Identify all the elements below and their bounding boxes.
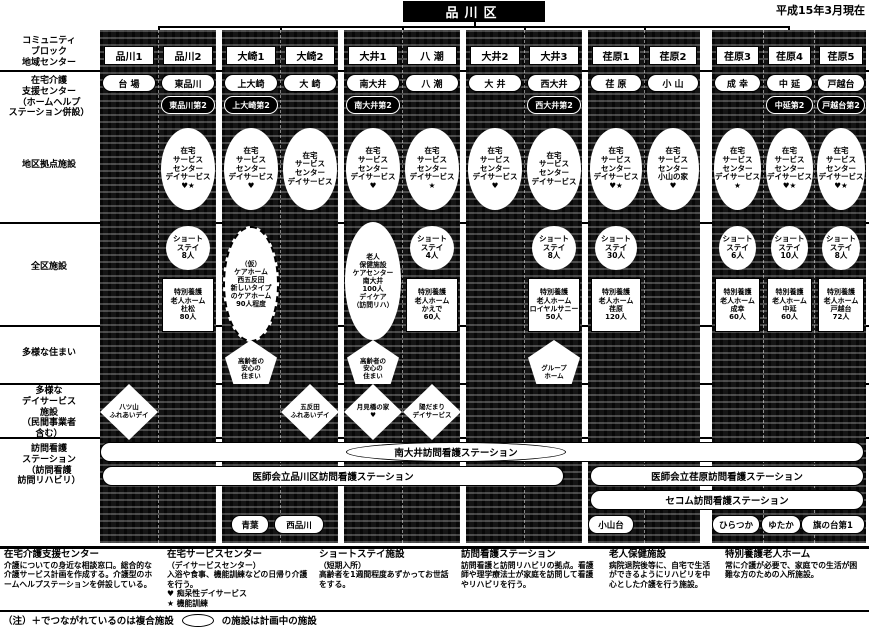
- grouphome-pentagon: グループ ホーム: [528, 340, 580, 384]
- shortstay-oval: ショート ステイ 6人: [719, 226, 756, 270]
- support-center-pill: 東品川: [161, 74, 215, 92]
- legend-body: 訪問看護と訪問リハビリの拠点。看護師や理学療法士が家庭を訪問して看護やリハビリを…: [461, 561, 600, 590]
- column-header: 大崎1: [226, 46, 276, 65]
- tree-horizontal-line: [158, 26, 790, 28]
- service-center-oval: 在宅 サービス センター デイサービス ♥★: [161, 128, 215, 210]
- station-oval-yutaka: ゆたか: [761, 515, 801, 534]
- column-header: 荏原2: [649, 46, 697, 65]
- support-center2-pill: 南大井第2: [346, 96, 400, 114]
- housing-pentagon: 高齢者の 安心の 住まい: [347, 340, 399, 384]
- minamioi-station-oval: 南大井訪問看護ステーション: [346, 442, 566, 462]
- service-center-oval: 在宅 サービス センター デイサービス ♥: [346, 128, 400, 210]
- support-center2-pill: 戸越台第2: [817, 96, 865, 114]
- service-center-oval: 在宅 サービス センター デイサービス ★: [405, 128, 459, 210]
- ward-title-box: 品川区: [403, 1, 545, 22]
- footnote: （注）＋でつながれているのは複合施設 の施設は計画中の施設: [0, 613, 869, 627]
- facility-map-diagram: 品川区 平成15年3月現在 コミュニティ ブロック 地域センター 在宅介護 支援…: [0, 0, 869, 627]
- column-header: 品川2: [163, 46, 213, 65]
- secom-station-pill: セコム訪問看護ステーション: [590, 490, 864, 510]
- nursing-home-box: 特別養護 老人ホーム 戸越台 72人: [818, 278, 864, 332]
- support-center2-pill: 西大井第2: [527, 96, 581, 114]
- legend-body: （短期入所） 高齢者を1週間程度あずかってお世話をする。: [319, 561, 452, 590]
- legend-title: 老人保健施設: [609, 550, 716, 561]
- rule-note-top: [0, 610, 869, 612]
- nursing-home-box: 特別養護 老人ホーム 成幸 60人: [715, 278, 760, 332]
- service-center-oval: 在宅 サービス センター デイサービス ♥: [224, 128, 278, 210]
- shortstay-oval: ショート ステイ 8人: [166, 226, 210, 270]
- column-header: 荏原3: [716, 46, 759, 65]
- planned-oval-glyph: [182, 614, 214, 627]
- column-header: 荏原1: [592, 46, 640, 65]
- station-oval-aoba: 青葉: [231, 515, 269, 534]
- shortstay-oval: ショート ステイ 10人: [771, 226, 808, 270]
- planned-carehome-oval: （仮） ケアホーム 西五反田 新しいタイプ のケアホーム 90人程度: [223, 226, 279, 342]
- support-center-pill: 大 井: [468, 74, 522, 92]
- support-center-pill: 大 崎: [283, 74, 337, 92]
- station-oval-nishishinagawa: 西品川: [274, 515, 324, 534]
- date-note: 平成15年3月現在: [776, 2, 865, 18]
- legend-shortstay: ショートステイ施設 （短期入所） 高齢者を1週間程度あずかってお世話をする。: [315, 549, 457, 609]
- housing-pentagon: 高齢者の 安心の 住まい: [225, 340, 277, 384]
- chart-area: 品川1 台 場 八ツ山 ふれあいデイ 品川2 東品川 東品川第2 在宅 サービス…: [100, 30, 866, 543]
- support-center-pill: 南大井: [346, 74, 400, 92]
- column-header: 荏原5: [819, 46, 863, 65]
- service-center-oval: 在宅 サービス センター デイサービス ♥★: [766, 128, 813, 210]
- column-header: 八 潮: [407, 46, 457, 65]
- legend-title: 在宅介護支援センター: [4, 550, 158, 561]
- day-service-diamond: 陽だまり デイサービス: [403, 384, 461, 440]
- column-header: 品川1: [104, 46, 154, 65]
- row-label-nurse: 訪問看護 ステーション （訪問看護 訪問リハビリ）: [0, 444, 98, 487]
- row-label-housing: 多様な住まい: [0, 348, 98, 359]
- support-center-pill: 戸越台: [817, 74, 865, 92]
- legend-care-support: 在宅介護支援センター 介護についての身近な相談窓口。総合的な介護サービス計画を作…: [0, 549, 163, 609]
- support-center-pill: 八 潮: [405, 74, 459, 92]
- legend-body: 常に介護が必要で、家庭での生活が困難な方のための入所施設。: [725, 561, 864, 580]
- row-label-community: コミュニティ ブロック 地域センター: [0, 36, 98, 68]
- shortstay-oval: ショート ステイ 4人: [410, 226, 454, 270]
- support-center2-pill: 中延第2: [766, 96, 813, 114]
- legend-title: 特別養護老人ホーム: [725, 550, 864, 561]
- footnote-plus-text: （注）＋でつながれているのは複合施設: [3, 613, 174, 627]
- footnote-oval-text: の施設は計画中の施設: [222, 613, 317, 627]
- nursing-home-box: 特別養護 老人ホーム 中延 60人: [767, 278, 812, 332]
- legend-service-center: 在宅サービスセンター （デイサービスセンター） 入浴や食事、機能訓練などの日帰り…: [163, 549, 315, 609]
- support-center2-pill: 上大崎第2: [224, 96, 278, 114]
- day-service-diamond: 八ツ山 ふれあいデイ: [100, 384, 158, 440]
- service-center-oval: 在宅 サービス センター 小山の家 ♥: [647, 128, 699, 210]
- nursing-home-box: 特別養護 老人ホーム かえで 60人: [406, 278, 458, 332]
- station-oval-hiratsuka: ひらつか: [712, 515, 760, 534]
- legend-body: 病院退院後等に、自宅で生活ができるようにリハビリを中心とした介護を行う施設。: [609, 561, 716, 590]
- station-oval-hatanodai1: 旗の台第1: [801, 515, 865, 534]
- column-header: 大井1: [348, 46, 398, 65]
- support-center-pill: 中 延: [766, 74, 813, 92]
- support-center-pill: 西大井: [527, 74, 581, 92]
- shortstay-oval: ショート ステイ 30人: [595, 226, 637, 270]
- row-label-care-support: 在宅介護 支援センター （ホームヘルプ ステーション併設）: [0, 76, 98, 119]
- ebara-medical-station-pill: 医師会立荏原訪問看護ステーション: [590, 466, 864, 486]
- support-center-pill: 小 山: [647, 74, 699, 92]
- service-center-oval: 在宅 サービス センター デイサービス ★: [714, 128, 761, 210]
- column-header: 大井3: [529, 46, 579, 65]
- nursing-home-box: 特別養護 老人ホーム ロイヤルサニー 50人: [528, 278, 580, 332]
- support-center-pill: 成 幸: [714, 74, 761, 92]
- support-center-pill: 荏 原: [590, 74, 642, 92]
- day-service-diamond: 月見橋の家 ♥: [344, 384, 402, 440]
- legend-body: （デイサービスセンター） 入浴や食事、機能訓練などの日帰り介護を行う。 ♥ 痴呆…: [167, 561, 310, 609]
- column-header: 荏原4: [768, 46, 811, 65]
- support-center2-pill: 東品川第2: [161, 96, 215, 114]
- nursing-home-box: 特別養護 老人ホーム 荏原 120人: [591, 278, 641, 332]
- legend-nurse-station: 訪問看護ステーション 訪問看護と訪問リハビリの拠点。看護師や理学療法士が家庭を訪…: [457, 549, 605, 609]
- legend: 在宅介護支援センター 介護についての身近な相談窓口。総合的な介護サービス計画を作…: [0, 549, 869, 609]
- shinagawa-medical-station-pill: 医師会立品川区訪問看護ステーション: [102, 466, 564, 486]
- day-service-diamond: 五反田 ふれあいデイ: [281, 384, 339, 440]
- support-center-pill: 上大崎: [224, 74, 278, 92]
- service-center-oval: 在宅 サービス センター デイサービス: [283, 128, 337, 210]
- service-center-oval: 在宅 サービス センター デイサービス ♥: [468, 128, 522, 210]
- station-oval-koyamadai: 小山台: [588, 515, 634, 534]
- service-center-oval: 在宅 サービス センター デイサービス ♥★: [590, 128, 642, 210]
- row-label-dayservice: 多様な デイサービス 施設 （民間事業者 含む）: [0, 386, 98, 440]
- shortstay-oval: ショート ステイ 8人: [532, 226, 576, 270]
- nursing-home-box: 特別養護 老人ホーム 杜松 80人: [162, 278, 214, 332]
- legend-title: ショートステイ施設: [319, 550, 452, 561]
- service-center-oval: 在宅 サービス センター デイサービス: [527, 128, 581, 210]
- legend-health-facility: 老人保健施設 病院退院後等に、自宅で生活ができるようにリハビリを中心とした介護を…: [605, 549, 721, 609]
- legend-body: 介護についての身近な相談窓口。総合的な介護サービス計画を作成する。介護型のホーム…: [4, 561, 158, 590]
- shortstay-oval: ショート ステイ 8人: [822, 226, 860, 270]
- legend-title: 在宅サービスセンター: [167, 550, 310, 561]
- legend-title: 訪問看護ステーション: [461, 550, 600, 561]
- column-header: 大井2: [470, 46, 520, 65]
- column-header: 大崎2: [285, 46, 335, 65]
- legend-nursing-home: 特別養護老人ホーム 常に介護が必要で、家庭での生活が困難な方のための入所施設。: [721, 549, 869, 609]
- row-label-wardwide: 全区施設: [0, 262, 98, 273]
- service-center-oval: 在宅 サービス センター デイサービス ♥★: [817, 128, 865, 210]
- row-label-district: 地区拠点施設: [0, 160, 98, 171]
- health-facility-oval: 老人 保健施設 ケアセンター 南大井 100人 デイケア （訪問リハ）: [345, 222, 401, 340]
- support-center-pill: 台 場: [102, 74, 156, 92]
